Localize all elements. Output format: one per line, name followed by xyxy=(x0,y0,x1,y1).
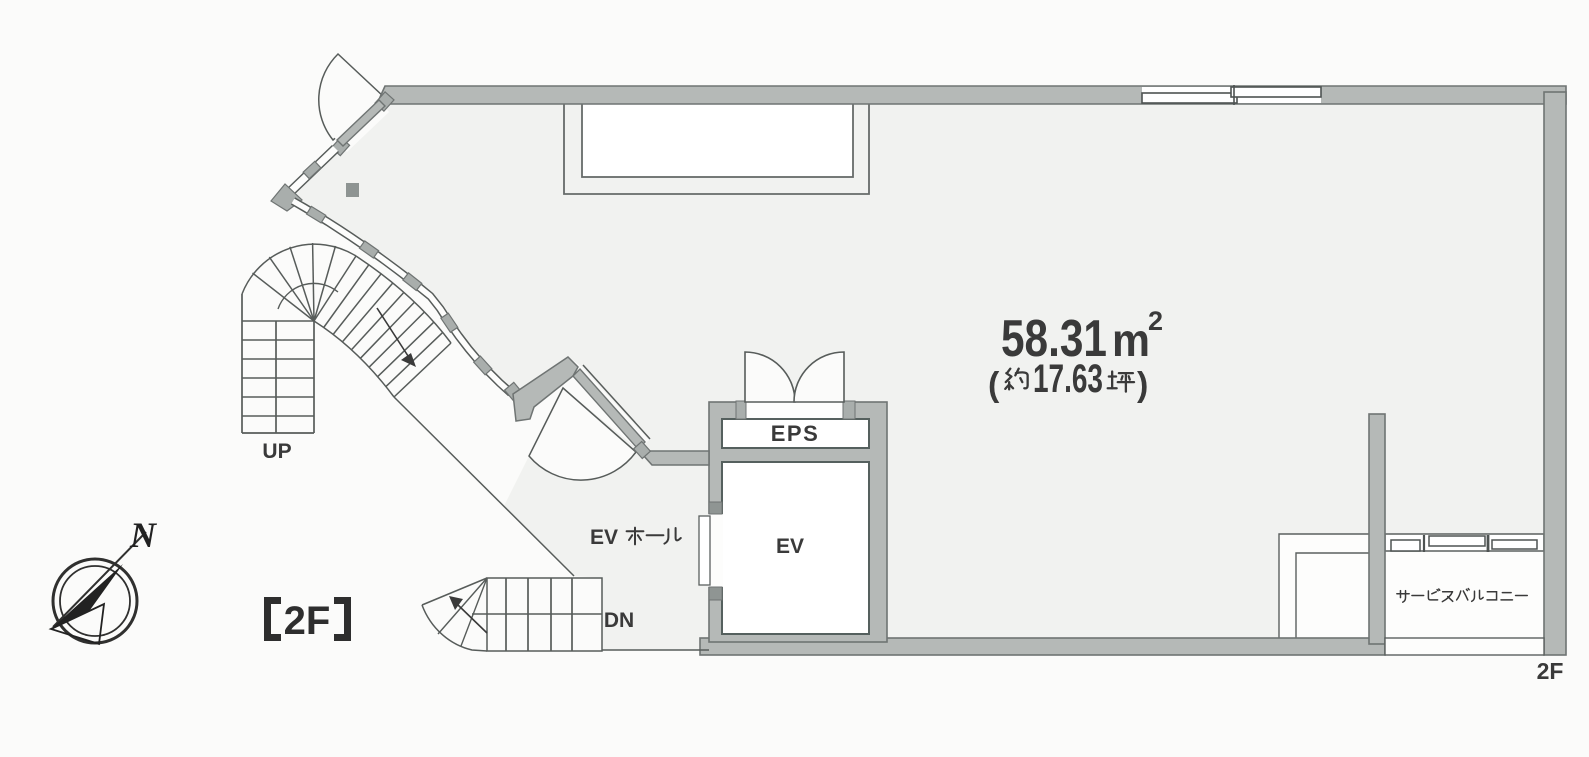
svg-text:(: ( xyxy=(988,366,1000,404)
svg-text:EPS: EPS xyxy=(771,421,820,446)
svg-text:EV: EV xyxy=(590,526,618,549)
svg-text:2F: 2F xyxy=(284,599,331,643)
svg-text:N: N xyxy=(129,515,158,555)
svg-text:DN: DN xyxy=(604,609,634,632)
svg-text:EV: EV xyxy=(776,535,804,558)
svg-text:2: 2 xyxy=(1148,306,1163,336)
svg-text:2F: 2F xyxy=(1537,658,1564,684)
svg-text:UP: UP xyxy=(262,440,291,463)
svg-text:): ) xyxy=(1137,366,1148,404)
svg-text:m: m xyxy=(1112,314,1150,366)
svg-text:17.63: 17.63 xyxy=(1033,357,1103,401)
